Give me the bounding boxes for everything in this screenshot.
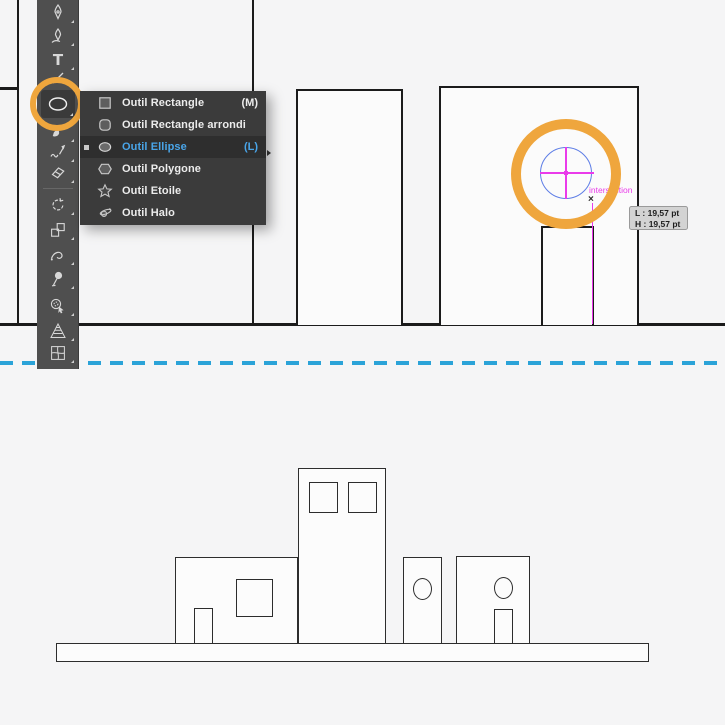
menu-item-label: Outil Etoile — [122, 185, 181, 197]
pen-tool-button[interactable] — [37, 1, 79, 25]
polygon-icon — [97, 161, 113, 177]
eraser-tool-button[interactable] — [37, 161, 79, 185]
curvature-tool-button[interactable] — [37, 24, 79, 48]
result-building-1-door — [194, 608, 213, 644]
menu-item-outil-rectangle[interactable]: Outil Rectangle (M) — [80, 92, 266, 114]
perspective-grid-tool-button[interactable] — [37, 319, 79, 343]
menu-item-outil-ellipse[interactable]: Outil Ellipse (L) — [80, 136, 266, 158]
result-ground-bar — [56, 643, 649, 662]
tooltip-width-value: L : 19,57 pt — [635, 208, 687, 219]
perspective-grid-icon — [48, 321, 68, 341]
tooltip-height-value: H : 19,57 pt — [635, 219, 687, 230]
halo-icon — [97, 205, 113, 221]
star-icon — [97, 183, 113, 199]
result-building-2-window-1 — [309, 482, 338, 513]
menu-item-label: Outil Rectangle arrondi — [122, 119, 246, 131]
menu-item-label: Outil Rectangle — [122, 97, 204, 109]
menu-item-outil-etoile[interactable]: Outil Etoile — [80, 180, 266, 202]
rectangle-icon — [97, 95, 113, 111]
rotate-icon — [48, 195, 68, 215]
rotate-tool-button[interactable] — [37, 193, 79, 217]
shaper-icon — [48, 142, 68, 162]
menu-item-outil-polygone[interactable]: Outil Polygone — [80, 158, 266, 180]
pen-icon — [48, 3, 68, 23]
mesh-tool-button[interactable] — [37, 341, 79, 365]
rounded-rectangle-icon — [97, 117, 113, 133]
building-c-door — [541, 226, 594, 325]
shape-builder-tool-button[interactable] — [37, 294, 79, 318]
menu-item-label: Outil Ellipse — [122, 141, 187, 153]
scale-icon — [48, 220, 68, 240]
shape-tools-flyout-menu: Outil Rectangle (M) Outil Rectangle arro… — [80, 91, 266, 225]
highlight-ring-canvas — [511, 119, 621, 229]
result-building-3 — [403, 557, 442, 644]
result-building-4-door — [494, 609, 513, 644]
shape-builder-icon — [48, 296, 68, 316]
menu-item-shortcut: (L) — [244, 141, 258, 153]
eraser-icon — [48, 163, 68, 183]
menu-item-label: Outil Polygone — [122, 163, 201, 175]
measurement-tooltip: L : 19,57 pt H : 19,57 pt — [629, 206, 688, 230]
tools-panel: T — [37, 0, 79, 369]
menu-item-outil-rectangle-arrondi[interactable]: Outil Rectangle arrondi — [80, 114, 266, 136]
result-building-4 — [456, 556, 530, 644]
scale-tool-button[interactable] — [37, 218, 79, 242]
puppet-warp-pin-icon — [48, 269, 68, 289]
current-tool-indicator — [84, 145, 89, 150]
building-left-partial-top — [0, 87, 18, 90]
width-tool-button[interactable] — [37, 243, 79, 267]
highlight-ring-toolbar — [30, 77, 84, 131]
building-left-partial-edge — [17, 0, 20, 325]
puppet-warp-tool-button[interactable] — [37, 267, 79, 291]
ellipse-icon — [97, 139, 113, 155]
menu-item-label: Outil Halo — [122, 207, 175, 219]
building-b — [296, 89, 403, 325]
curvature-icon — [48, 26, 68, 46]
result-building-3-round-window — [413, 578, 432, 600]
mesh-icon — [48, 343, 68, 363]
menu-item-shortcut: (M) — [242, 97, 259, 109]
menu-item-outil-halo[interactable]: Outil Halo — [80, 202, 266, 224]
illustrator-tutorial-screenshot: intersection × L : 19,57 pt H : 19,57 pt… — [0, 0, 725, 725]
toolbar-divider — [43, 188, 73, 189]
width-tool-icon — [48, 245, 68, 265]
result-building-1-window — [236, 579, 273, 617]
result-building-4-round-window — [494, 577, 513, 599]
flyout-tearoff-arrow-icon — [267, 150, 271, 156]
section-divider-dashed-line — [0, 361, 725, 365]
result-building-2-window-2 — [348, 482, 377, 513]
